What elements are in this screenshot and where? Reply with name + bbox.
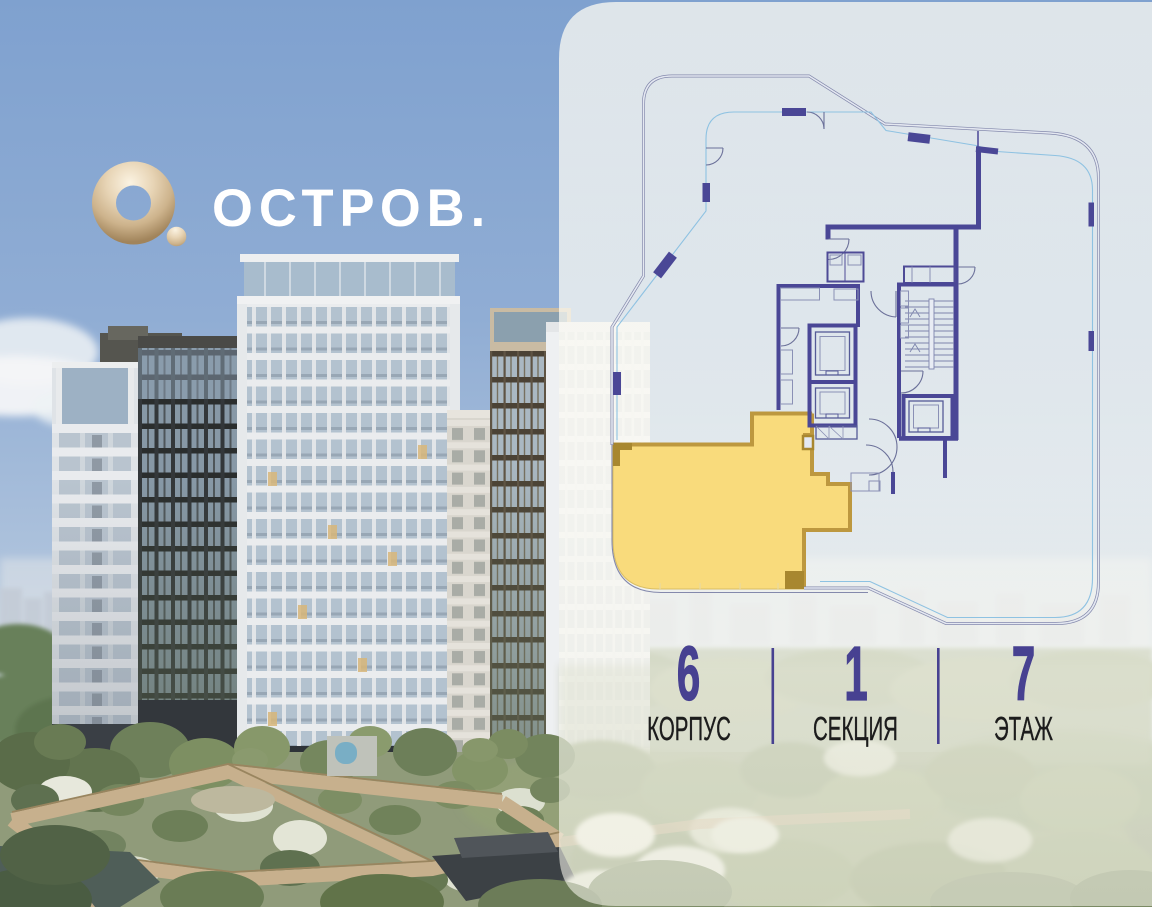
svg-text:СЕКЦИЯ: СЕКЦИЯ (813, 710, 898, 747)
svg-text:1: 1 (844, 632, 868, 718)
svg-text:ОСТРОВ.: ОСТРОВ. (212, 179, 491, 238)
svg-text:7: 7 (1012, 632, 1036, 718)
svg-text:КОРПУС: КОРПУС (647, 710, 731, 747)
svg-text:ЭТАЖ: ЭТАЖ (994, 710, 1053, 747)
svg-text:6: 6 (677, 632, 701, 718)
